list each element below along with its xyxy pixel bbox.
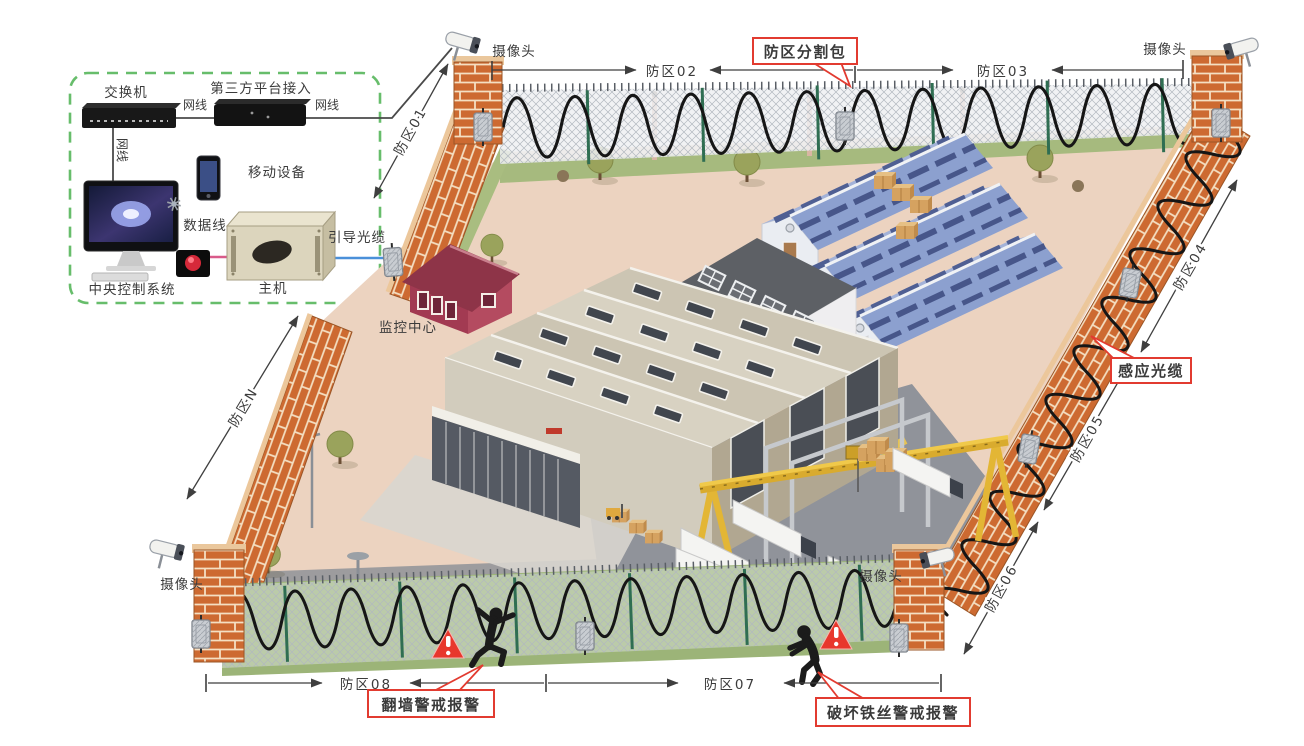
zone-07-label: 防区07	[704, 677, 756, 693]
switch-label: 交换机	[104, 84, 148, 101]
bush	[557, 170, 569, 182]
camera-label-top-left: 摄像头	[492, 44, 536, 60]
central-control-computer	[84, 181, 178, 281]
zone-02-label: 防区02	[646, 64, 698, 80]
third-party-platform-device	[214, 99, 311, 126]
junction-box	[890, 619, 908, 657]
cut-wire-alarm-label: 破坏铁丝警戒报警	[827, 704, 959, 722]
guide-cable-label: 引导光缆	[328, 230, 386, 246]
mobile-phone	[197, 156, 220, 200]
net-cable-label-2: 网线	[315, 98, 339, 112]
zone-03-label: 防区03	[977, 64, 1029, 80]
logo-sign	[546, 428, 562, 434]
camera-label-bottom-right: 摄像头	[859, 569, 903, 585]
host-server	[227, 212, 335, 280]
callout-cut-wire-alarm: 破坏铁丝警戒报警	[816, 672, 970, 726]
net-cable-label-1: 网线	[183, 98, 207, 112]
camera-label-top-right: 摄像头	[1143, 42, 1187, 58]
sensing-cable-label: 感应光缆	[1118, 362, 1184, 380]
camera-bottom-left-icon	[145, 537, 185, 573]
junction-box	[1212, 104, 1230, 142]
diagram-canvas: 交换机 第三方平台接入 网线 网线 网线 移动设备 数据线 中央控制系统 主机 …	[0, 0, 1304, 746]
zone-N-label: 防区N	[226, 385, 262, 430]
camera-label-bottom-left: 摄像头	[160, 577, 204, 593]
house-window	[482, 294, 495, 307]
junction-box	[576, 617, 594, 655]
junction-box	[474, 108, 492, 146]
data-cable-label: 数据线	[183, 218, 227, 234]
callout-climb-alarm: 翻墙警戒报警	[368, 665, 494, 717]
alarm-lamp	[176, 250, 210, 277]
junction-box-guide-cable	[383, 242, 404, 281]
network-switch-device	[82, 103, 181, 128]
security-system-diagram: 交换机 第三方平台接入 网线 网线 网线 移动设备 数据线 中央控制系统 主机 …	[0, 0, 1304, 746]
zone-splitter-label: 防区分割包	[764, 43, 847, 61]
net-cable-label-3: 网线	[115, 138, 129, 162]
host-label: 主机	[259, 281, 288, 297]
bush	[1072, 180, 1084, 192]
central-system-label: 中央控制系统	[89, 282, 176, 298]
climb-alarm-label: 翻墙警戒报警	[381, 696, 480, 714]
monitor-center-label: 监控中心	[379, 320, 437, 336]
junction-box-zone-splitter	[836, 107, 854, 145]
platform-label: 第三方平台接入	[210, 80, 312, 97]
junction-box	[192, 615, 210, 653]
keyboard	[92, 273, 148, 281]
mobile-device-label: 移动设备	[248, 164, 306, 181]
callout-zone-splitter: 防区分割包	[753, 38, 857, 86]
